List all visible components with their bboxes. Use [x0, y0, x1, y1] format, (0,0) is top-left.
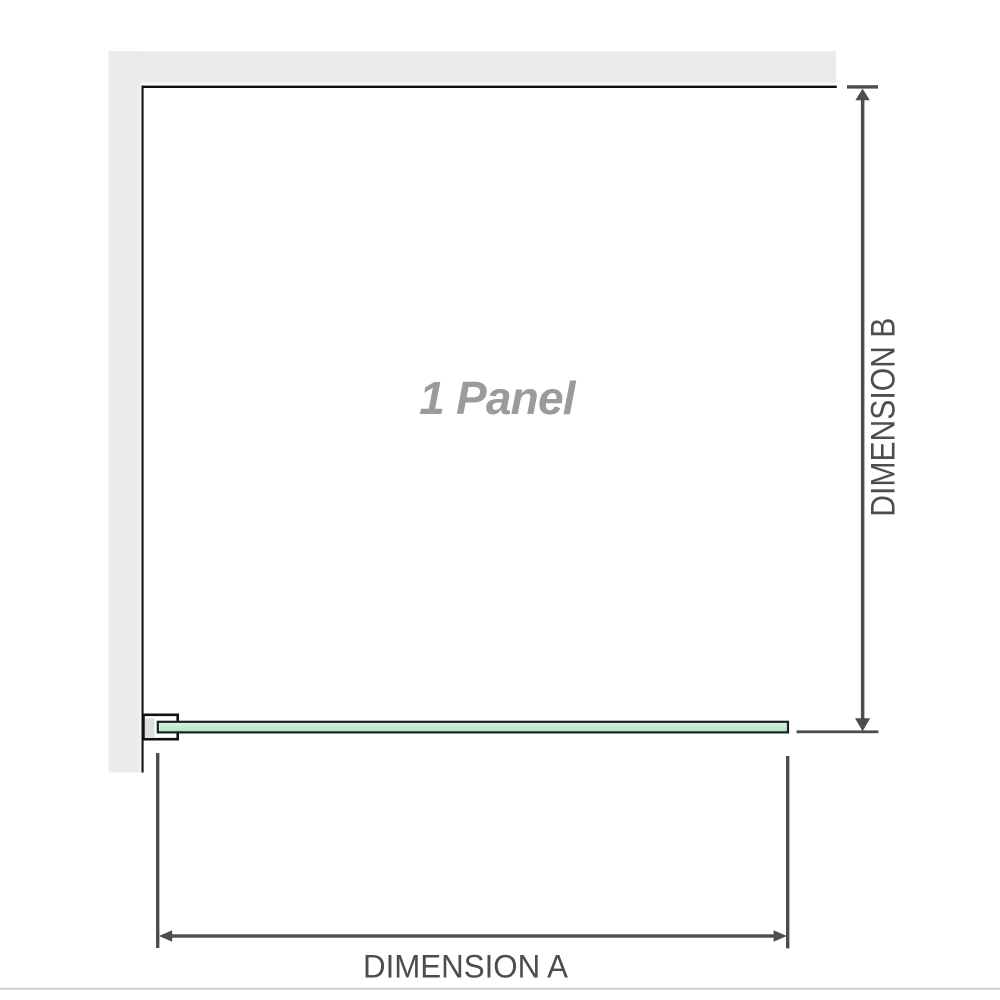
- svg-text:DIMENSION A: DIMENSION A: [363, 948, 569, 984]
- svg-text:DIMENSION B: DIMENSION B: [865, 318, 903, 517]
- svg-text:1 Panel: 1 Panel: [419, 372, 577, 424]
